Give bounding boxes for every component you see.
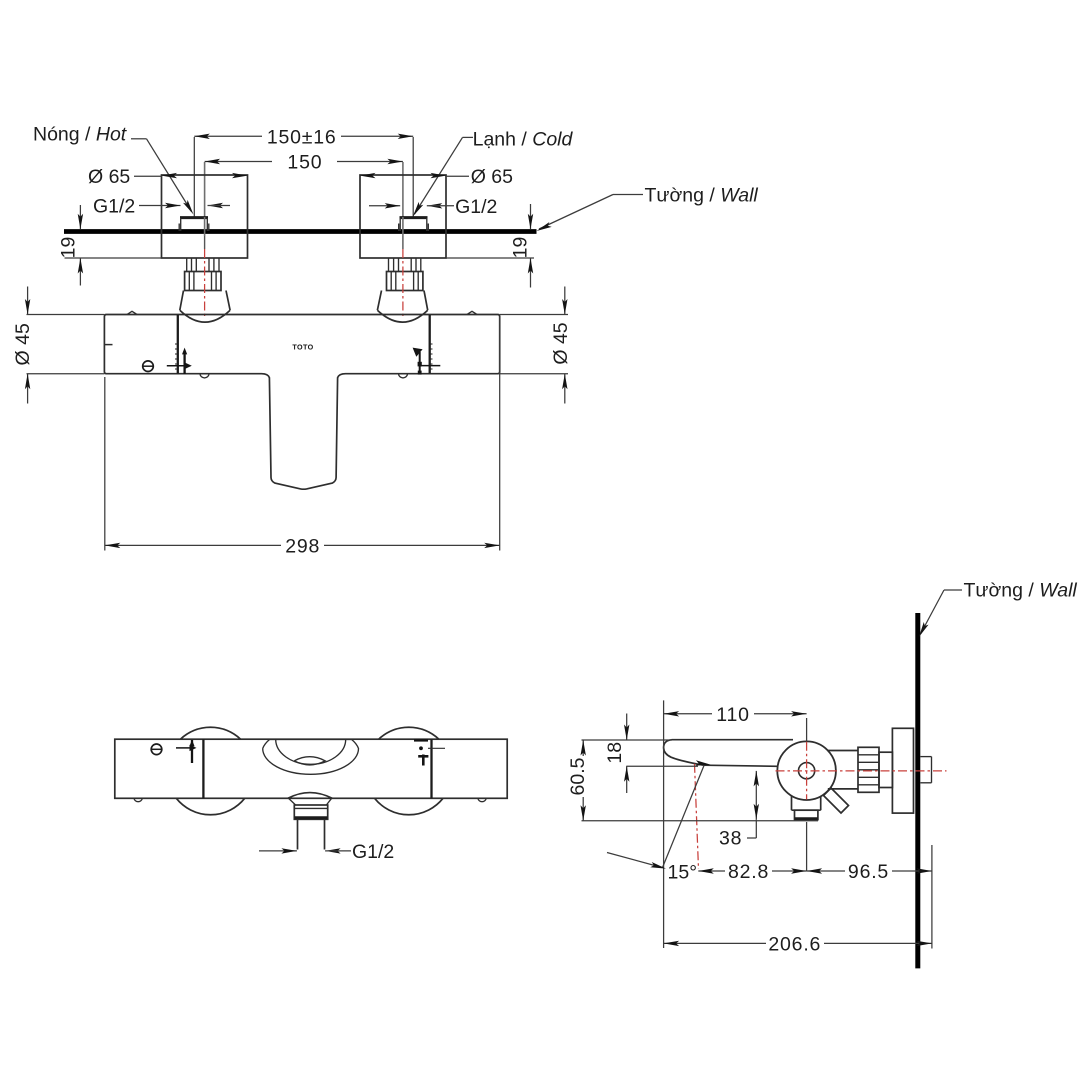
svg-text:38: 38: [719, 828, 742, 850]
svg-text:G1/2: G1/2: [93, 196, 135, 218]
svg-text:19: 19: [510, 237, 532, 259]
svg-text:19: 19: [58, 237, 80, 259]
svg-text:G1/2: G1/2: [352, 841, 394, 863]
svg-text:Lạnh / Cold: Lạnh / Cold: [473, 129, 574, 151]
svg-text:G1/2: G1/2: [455, 196, 497, 218]
svg-text:Tường / Wall: Tường / Wall: [645, 185, 759, 207]
svg-text:150: 150: [287, 151, 322, 173]
svg-text:60.5: 60.5: [567, 757, 589, 795]
svg-text:Ø 45: Ø 45: [550, 322, 572, 364]
svg-text:Ø 65: Ø 65: [88, 166, 130, 188]
svg-text:206.6: 206.6: [768, 933, 821, 955]
svg-text:Ø 45: Ø 45: [12, 323, 34, 365]
svg-text:18: 18: [604, 742, 626, 764]
svg-text:Ø 65: Ø 65: [471, 166, 513, 188]
svg-text:82.8: 82.8: [728, 861, 769, 883]
svg-text:Tường / Wall: Tường / Wall: [964, 580, 1078, 602]
svg-text:Nóng / Hot: Nóng / Hot: [33, 124, 128, 146]
svg-text:15°: 15°: [668, 862, 698, 884]
svg-text:298: 298: [285, 535, 320, 557]
svg-text:TOTO: TOTO: [292, 342, 313, 351]
svg-text:110: 110: [716, 704, 750, 726]
svg-text:150±16: 150±16: [267, 126, 337, 148]
svg-text:96.5: 96.5: [848, 861, 889, 883]
